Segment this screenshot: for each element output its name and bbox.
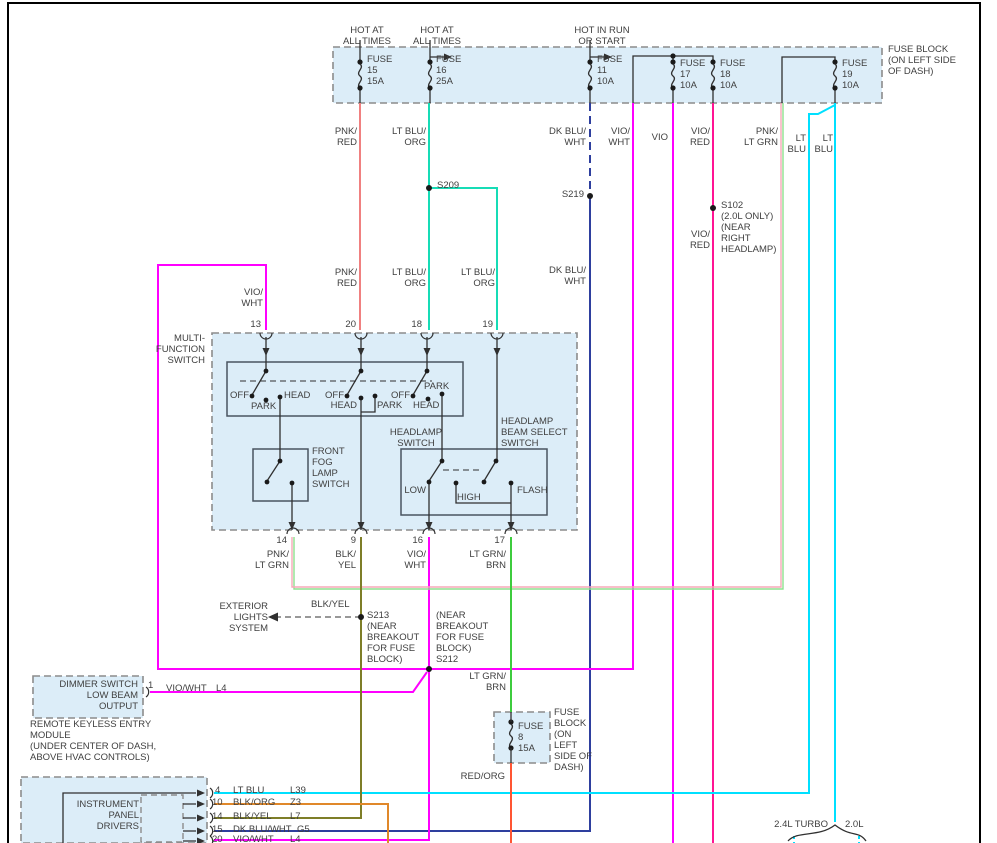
pin-14-label: 14	[276, 535, 287, 546]
ip-pin-14-label: 14	[212, 811, 223, 822]
beam-select-switch-title: HEADLAMP BEAM SELECT SWITCH	[501, 416, 568, 449]
exterior-lights-arrow	[268, 613, 278, 622]
wire-dk-blu-wht-label-1: DK BLU/ WHT	[549, 126, 586, 148]
headlamp-switch-title: HEADLAMP SWITCH	[390, 427, 442, 449]
pole1-head-label: HEAD	[284, 390, 310, 401]
wire-vio-red-label-2: VIO/ RED	[690, 229, 710, 251]
wire-pnk-lt-grn-label-2: PNK/ LT GRN	[255, 549, 289, 571]
beam-high-label: HIGH	[457, 492, 481, 503]
wire-blk-yel	[214, 537, 361, 818]
circuit-z3-label: Z3	[290, 797, 301, 808]
splice-s212-dot	[426, 666, 432, 672]
engine-20l-label: 2.0L	[845, 819, 864, 830]
ip-pin-10-label: 10	[212, 797, 223, 808]
splice-s209-dot	[426, 185, 432, 191]
wire-lt-grn-brn-label-1: LT GRN/ BRN	[469, 549, 506, 571]
wire-pnk-red-label-1: PNK/ RED	[335, 126, 357, 148]
ip-wire-lt-blu-label: LT BLU	[233, 785, 264, 796]
multi-function-switch-title: MULTI- FUNCTION SWITCH	[156, 333, 205, 366]
splice-s209-label: S209	[437, 180, 459, 191]
pin-19-label: 19	[482, 319, 493, 330]
splice-s102-label: S102 (2.0L ONLY) (NEAR RIGHT HEADLAMP)	[721, 200, 776, 255]
wire-dk-blu-wht-label-2: DK BLU/ WHT	[549, 265, 586, 287]
splice-s102-dot	[710, 205, 716, 211]
fuse-block-title: FUSE BLOCK (ON LEFT SIDE OF DASH)	[888, 44, 956, 77]
wire-blk-yel-label-1: BLK/ YEL	[335, 549, 356, 571]
pin-20-label: 20	[345, 319, 356, 330]
splice-s213-label: S213 (NEAR BREAKOUT FOR FUSE BLOCK)	[367, 610, 419, 665]
beam-flash-label: FLASH	[517, 485, 548, 496]
hot-in-run-or-start: HOT IN RUN OR START	[574, 25, 629, 47]
wire-vio-wht-label-1: VIO/ WHT	[608, 126, 630, 148]
pole3-park-label: PARK	[424, 381, 449, 392]
beam-low-label: LOW	[404, 485, 426, 496]
wire-lt-blu-label-2: LT BLU	[815, 133, 833, 155]
wire-lt-blu-org-branch	[429, 188, 497, 330]
dimmer-pin-1-label: 1	[148, 680, 153, 691]
wire-lt-blu-label-1: LT BLU	[788, 133, 806, 155]
wire-lt-blu-org-label-2: LT BLU/ ORG	[392, 267, 426, 289]
pole1-park-label: PARK	[251, 401, 276, 412]
ip-wire-vio-wht-label: VIO/WHT	[233, 834, 274, 843]
wire-vio-wht-label-2: VIO/ WHT	[241, 287, 263, 309]
fuse-8-block-label: FUSE BLOCK (ON LEFT SIDE OF DASH)	[554, 707, 592, 773]
pole3-off-label: OFF	[391, 390, 410, 401]
ip-pin-4-label: 4	[215, 785, 220, 796]
pin-18-label: 18	[411, 319, 422, 330]
dimmer-switch-title: DIMMER SWITCH LOW BEAM OUTPUT	[59, 679, 138, 712]
fuse-bus-junction-dot	[670, 53, 675, 58]
pin-16-label: 16	[412, 535, 423, 546]
wire-vio-label: VIO	[652, 132, 668, 143]
pin-17-label: 17	[494, 535, 505, 546]
pole2-park-label: PARK	[377, 400, 402, 411]
fuse-8-label: FUSE 8 15A	[518, 721, 543, 754]
wiring-diagram-canvas	[0, 0, 997, 843]
splice-s219-dot	[587, 193, 593, 199]
ip-wire-blk-org-label: BLK/ORG	[233, 797, 275, 808]
pole3-head-label: HEAD	[413, 400, 439, 411]
wire-vio-wht-label-3: VIO/ WHT	[404, 549, 426, 571]
fuse-16-label: FUSE 16 25A	[436, 54, 461, 87]
circuit-l39-label: L39	[290, 785, 306, 796]
wire-lt-grn-brn-label-2: LT GRN/ BRN	[469, 671, 506, 693]
circuit-l4-label-2: L4	[290, 834, 301, 843]
wire-vio-red-label-1: VIO/ RED	[690, 126, 710, 148]
front-fog-lamp-switch-title: FRONT FOG LAMP SWITCH	[312, 446, 349, 490]
wire-pnk-lt-grn-label-1: PNK/ LT GRN	[744, 126, 778, 148]
pin-9-label: 9	[351, 535, 356, 546]
remote-keyless-entry-label: REMOTE KEYLESS ENTRY MODULE (UNDER CENTE…	[30, 719, 156, 763]
wire-lt-blu-engine-stubs	[794, 836, 859, 843]
hot-at-all-times-2: HOT AT ALL TIMES	[413, 25, 461, 47]
wire-lt-blu-org-label-1: LT BLU/ ORG	[392, 126, 426, 148]
ip-pin-20-label: 20	[212, 834, 223, 843]
splice-s213-dot	[358, 614, 364, 620]
ip-wire-blk-yel-label: BLK/YEL	[233, 811, 272, 822]
fuse-17-label: FUSE 17 10A	[680, 58, 705, 91]
wire-lt-blu-org-label-3: LT BLU/ ORG	[461, 267, 495, 289]
pole2-head-label: HEAD	[331, 400, 357, 411]
pole1-off-label: OFF	[230, 390, 249, 401]
fuse-11-label: FUSE 11 10A	[597, 54, 622, 87]
hot-at-all-times-1: HOT AT ALL TIMES	[343, 25, 391, 47]
fuse-15-label: FUSE 15 15A	[367, 54, 392, 87]
exterior-lights-system-label: EXTERIOR LIGHTS SYSTEM	[219, 601, 268, 634]
instrument-panel-drivers-title: INSTRUMENT PANEL DRIVERS	[77, 799, 139, 832]
wire-blk-yel-label-2: BLK/YEL	[311, 599, 350, 610]
splice-s219-label: S219	[562, 189, 584, 200]
fuse-19-label: FUSE 19 10A	[842, 58, 867, 91]
wiring-diagram-page: HOT AT ALL TIMESHOT AT ALL TIMESHOT IN R…	[0, 0, 997, 843]
pin-13-label: 13	[250, 319, 261, 330]
wire-vio-wht-label-4: VIO/WHT	[166, 683, 207, 694]
fuse-18-label: FUSE 18 10A	[720, 58, 745, 91]
circuit-l7-label: L7	[290, 811, 301, 822]
circuit-l4-label-1: L4	[216, 683, 227, 694]
engine-24l-turbo-label: 2.4L TURBO	[774, 819, 828, 830]
wire-pnk-red-label-2: PNK/ RED	[335, 267, 357, 289]
wire-red-org-label: RED/ORG	[461, 771, 505, 782]
splice-s212-label: (NEAR BREAKOUT FOR FUSE BLOCK) S212	[436, 610, 488, 665]
